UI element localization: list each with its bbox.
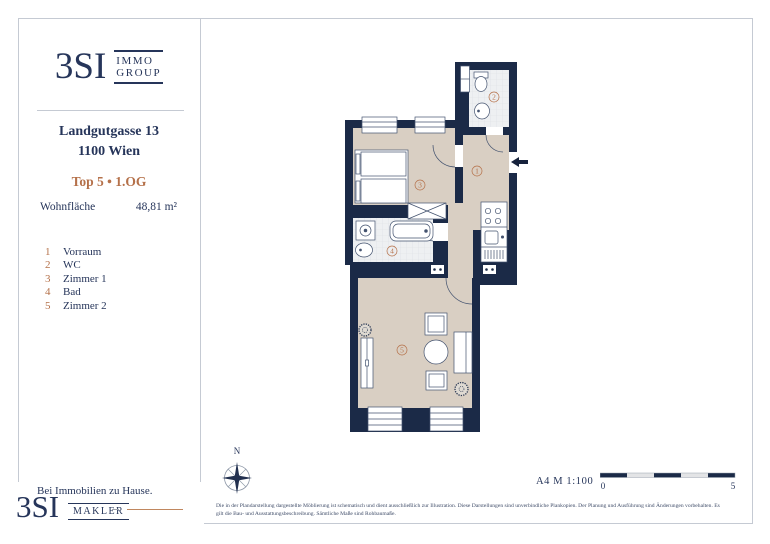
area-label: Wohnfläche [40, 201, 95, 213]
legend-label: Bad [63, 286, 81, 299]
makler-wordmark: MAKLER [68, 503, 129, 520]
legend-label: Vorraum [63, 246, 101, 259]
unit-line: Top 5 • 1.OG [18, 174, 200, 190]
legend-row: 3 Zimmer 1 [45, 273, 107, 286]
disclaimer-line-2: gilt die Bau- und Ausstattungsbeschreibu… [216, 511, 750, 519]
svg-text:1: 1 [475, 167, 479, 176]
legend-label: Zimmer 1 [63, 273, 107, 286]
legend-row: 1 Vorraum [45, 246, 107, 259]
legend-row: 5 Zimmer 2 [45, 300, 107, 313]
brand-logo-3si: 3SI [55, 48, 106, 85]
wardrobe-closet [408, 203, 446, 219]
plant-left [359, 324, 371, 336]
disclaimer-line-1: Die in der Plandarstellung dargestellte … [216, 503, 750, 511]
plant-right [455, 383, 468, 396]
scale-start-label: 0 [601, 481, 606, 491]
immo-group-wordmark: IMMO GROUP [114, 50, 163, 84]
footer-dash-rule [112, 509, 119, 510]
bathtub [390, 221, 433, 241]
footer-brand-block: Bei Immobilien zu Hause. 3SI MAKLER [14, 482, 204, 538]
window-zimmer1-b [415, 117, 445, 133]
svg-text:3: 3 [418, 181, 422, 190]
brand-divider-rule [37, 110, 184, 111]
footer-logo-3si: 3SI [16, 491, 59, 522]
wc-sink [475, 103, 490, 119]
window-zimmer2-a [368, 407, 402, 431]
scale-bar: 0 5 [600, 471, 740, 493]
brand-logo-group: GROUP [116, 67, 161, 79]
legend-row: 4 Bad [45, 286, 107, 299]
footer-orange-rule [127, 509, 183, 510]
bath-sink [356, 243, 373, 257]
svg-text:2: 2 [492, 93, 496, 102]
paper-scale-label: A4 M 1:100 [536, 476, 593, 487]
compass-icon: N [215, 444, 259, 502]
kitchen-counter [481, 202, 507, 262]
dining-table [424, 340, 448, 364]
svg-text:4: 4 [390, 247, 394, 256]
shaft [461, 66, 470, 92]
brand-logo-immo: IMMO [116, 55, 153, 67]
floorplan-page: 3SI IMMO GROUP Landgutgasse 13 1100 Wien… [0, 0, 770, 544]
dining-chair-bottom [426, 371, 447, 390]
dining-chair-top [425, 313, 447, 335]
legend-label: WC [63, 259, 81, 272]
legend-label: Zimmer 2 [63, 300, 107, 313]
wardrobe-zimmer2 [361, 338, 373, 388]
area-value: 48,81 m² [136, 201, 177, 213]
legend-num: 2 [45, 259, 63, 272]
panel-divider [200, 18, 201, 523]
bed [355, 150, 408, 203]
svg-text:5: 5 [400, 346, 404, 355]
legend-num: 3 [45, 273, 63, 286]
legend-row: 2 WC [45, 259, 107, 272]
sofa [454, 332, 472, 373]
room-legend: 1 Vorraum 2 WC 3 Zimmer 1 4 Bad 5 Zimmer… [45, 246, 107, 313]
compass-north-label: N [234, 446, 241, 456]
washing-machine [356, 221, 375, 240]
scale-end-label: 5 [731, 481, 736, 491]
toilet [474, 72, 488, 92]
disclaimer: Die in der Plandarstellung dargestellte … [216, 503, 750, 518]
brand-logo: 3SI IMMO GROUP [18, 48, 200, 85]
floor-plan: 1 2 3 4 5 [340, 55, 550, 450]
area-row: Wohnfläche 48,81 m² [40, 201, 177, 213]
address-line-2: 1100 Wien [18, 144, 200, 160]
legend-num: 1 [45, 246, 63, 259]
corridor-floor [448, 203, 473, 278]
legend-num: 4 [45, 286, 63, 299]
window-zimmer2-b [430, 407, 463, 431]
address-line-1: Landgutgasse 13 [18, 124, 200, 140]
legend-num: 5 [45, 300, 63, 313]
window-zimmer1-a [362, 117, 397, 133]
